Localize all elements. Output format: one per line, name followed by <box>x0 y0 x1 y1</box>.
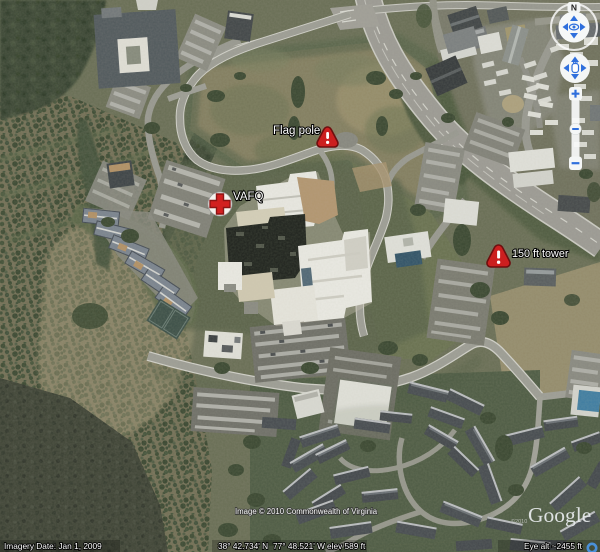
svg-text:Eye alt ~2455 ft: Eye alt ~2455 ft <box>524 541 583 551</box>
svg-text:Google: Google <box>528 503 591 527</box>
svg-text:Image © 2010 Commonwealth of V: Image © 2010 Commonwealth of Virginia <box>235 507 378 516</box>
svg-text:Flag pole: Flag pole <box>273 125 320 137</box>
svg-text:VAFQ: VAFQ <box>233 191 264 203</box>
svg-text:38° 42.734' N: 38° 42.734' N <box>218 541 268 551</box>
svg-text:elev 589 ft: elev 589 ft <box>327 541 366 551</box>
svg-text:N: N <box>571 3 577 13</box>
svg-text:77° 48.521' W: 77° 48.521' W <box>273 541 325 551</box>
svg-text:©2010: ©2010 <box>511 518 527 525</box>
svg-text:Imagery Date: Jan 1, 2009: Imagery Date: Jan 1, 2009 <box>4 541 102 551</box>
svg-text:150 ft tower: 150 ft tower <box>512 248 569 260</box>
